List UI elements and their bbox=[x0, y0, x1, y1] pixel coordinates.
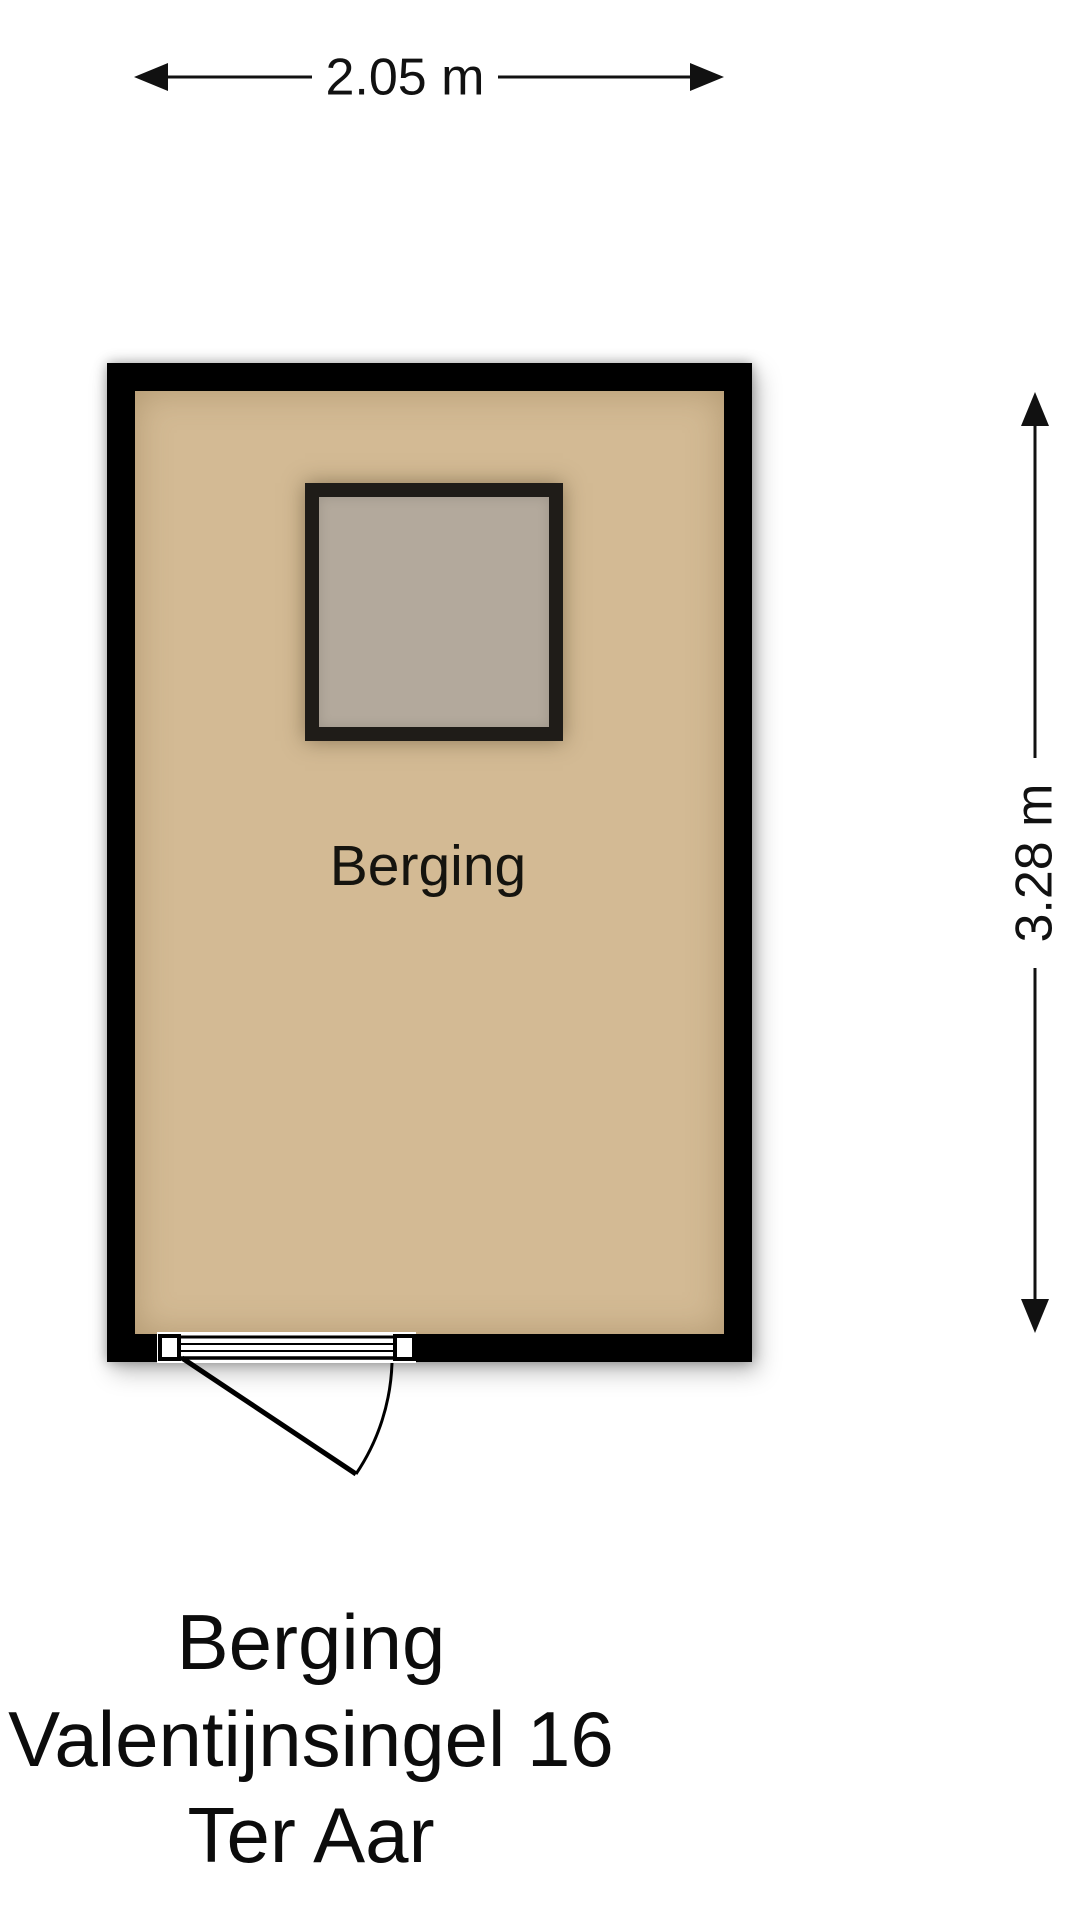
arrowhead-down bbox=[1021, 1299, 1049, 1333]
plan-title: Berging Valentijnsingel 16 Ter Aar bbox=[8, 1594, 614, 1884]
room-floor: Berging bbox=[135, 391, 724, 1334]
plan-title-line2: Valentijnsingel 16 bbox=[8, 1691, 614, 1788]
plan-title-line3: Ter Aar bbox=[8, 1787, 614, 1884]
arrowhead-right bbox=[690, 63, 724, 91]
arrowhead-up bbox=[1021, 392, 1049, 426]
square-fixture bbox=[305, 483, 563, 741]
room-outline: Berging bbox=[107, 363, 752, 1362]
width-dimension-label: 2.05 m bbox=[320, 49, 491, 106]
door-leaf bbox=[182, 1358, 356, 1474]
plan-title-line1: Berging bbox=[8, 1594, 614, 1691]
arrowhead-left bbox=[134, 63, 168, 91]
room-label: Berging bbox=[330, 833, 526, 899]
door-swing-arc bbox=[356, 1363, 392, 1474]
height-dimension-label: 3.28 m bbox=[1006, 778, 1063, 949]
floorplan-page: 2.05 m 3.28 m Berging bbox=[0, 0, 1080, 1920]
